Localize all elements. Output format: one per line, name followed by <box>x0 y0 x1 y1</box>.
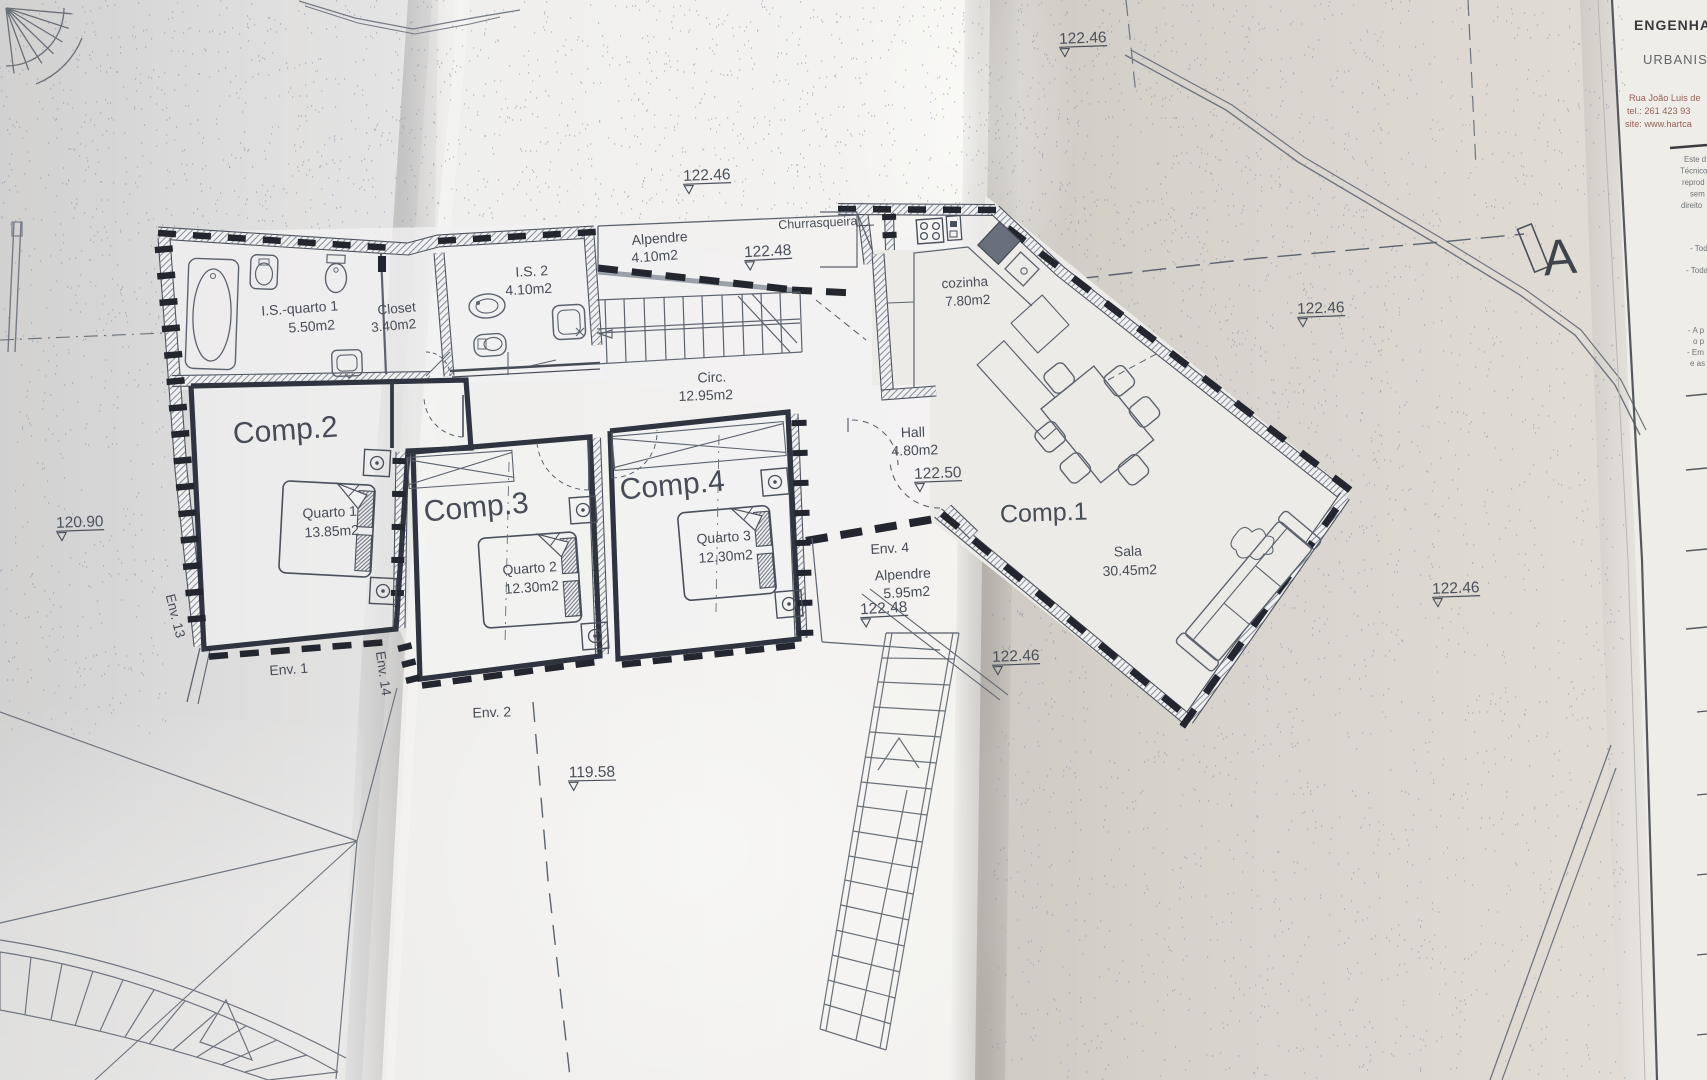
svg-text:120.90: 120.90 <box>56 513 104 532</box>
svg-text:Técnico: Técnico <box>1680 167 1707 176</box>
svg-text:Comp.1: Comp.1 <box>999 497 1087 528</box>
svg-text:- Toda: - Toda <box>1686 266 1707 275</box>
svg-text:URBANISMO: URBANISMO <box>1643 52 1707 67</box>
svg-text:site: www.hartca: site: www.hartca <box>1625 119 1693 129</box>
svg-text:- Em: - Em <box>1687 348 1704 357</box>
svg-text:Env. 2: Env. 2 <box>472 703 511 720</box>
svg-text:- Tod: - Tod <box>1690 244 1707 253</box>
svg-text:5.50m2: 5.50m2 <box>288 316 336 335</box>
svg-text:reprod: reprod <box>1682 178 1705 187</box>
svg-text:4.10m2: 4.10m2 <box>631 246 679 265</box>
svg-text:122.46: 122.46 <box>1432 579 1480 598</box>
svg-text:122.46: 122.46 <box>1059 29 1107 48</box>
svg-text:122.50: 122.50 <box>914 464 962 483</box>
svg-text:122.46: 122.46 <box>992 647 1040 666</box>
svg-text:tel.: 261 423 93: tel.: 261 423 93 <box>1627 106 1690 116</box>
svg-text:7.80m2: 7.80m2 <box>945 292 991 309</box>
svg-text:Env. 4: Env. 4 <box>870 539 910 557</box>
svg-text:Quarto 1: Quarto 1 <box>302 503 357 522</box>
svg-text:12.95m2: 12.95m2 <box>678 386 733 404</box>
svg-text:Env. 1: Env. 1 <box>269 660 309 679</box>
svg-text:- A p: - A p <box>1688 326 1705 335</box>
svg-text:Rua João Luis de: Rua João Luis de <box>1629 93 1701 103</box>
svg-text:30.45m2: 30.45m2 <box>1102 561 1157 579</box>
svg-text:119.58: 119.58 <box>569 764 616 782</box>
svg-text:122.46: 122.46 <box>683 166 731 185</box>
svg-text:4.80m2: 4.80m2 <box>891 441 938 459</box>
svg-text:13.85m2: 13.85m2 <box>304 522 359 541</box>
svg-text:e as: e as <box>1690 359 1705 368</box>
svg-text:Este d: Este d <box>1684 155 1706 164</box>
svg-text:sem: sem <box>1690 190 1705 199</box>
svg-text:cozinha: cozinha <box>941 274 989 291</box>
svg-text:A: A <box>1540 228 1579 287</box>
svg-text:4.10m2: 4.10m2 <box>505 280 553 298</box>
svg-text:ENGENHARIA: ENGENHARIA <box>1634 17 1707 33</box>
svg-text:Hall: Hall <box>900 424 925 441</box>
svg-text:Alpendre: Alpendre <box>874 565 931 584</box>
svg-text:Circ.: Circ. <box>697 369 726 386</box>
svg-text:Sala: Sala <box>1114 543 1143 560</box>
svg-text:I.S. 2: I.S. 2 <box>515 262 549 280</box>
svg-text:o p: o p <box>1693 337 1705 346</box>
svg-text:122.46: 122.46 <box>1297 299 1345 318</box>
svg-text:direito: direito <box>1681 201 1703 210</box>
